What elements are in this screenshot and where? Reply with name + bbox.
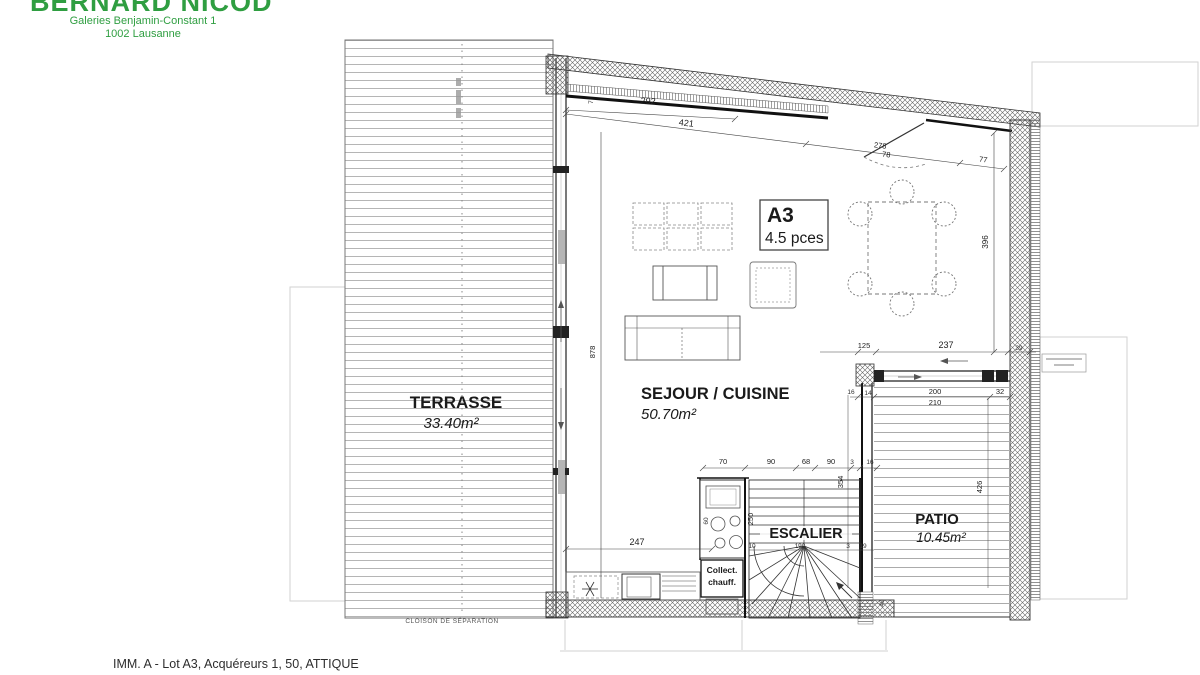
slide-arrow-down-icon xyxy=(558,388,564,430)
slide-arrow-right-icon xyxy=(898,374,922,380)
dim-421: 421 xyxy=(678,117,694,129)
dim-210: 210 xyxy=(929,398,942,407)
dim-68: 68 xyxy=(802,457,810,466)
collect-chauff-box: Collect. chauff. xyxy=(701,560,743,597)
unit-size: 4.5 pces xyxy=(765,230,824,247)
dim-16b: 16 xyxy=(866,459,874,466)
dim-396: 396 xyxy=(981,235,990,249)
address-line1: Galeries Benjamin-Constant 1 xyxy=(18,15,268,28)
dim-125: 125 xyxy=(858,341,871,350)
tv-sideboard xyxy=(633,203,732,250)
floor-drain-icon xyxy=(582,582,598,596)
unit-label-box: A3 4.5 pces xyxy=(760,200,828,250)
terrace-label: TERRASSE xyxy=(410,393,503,412)
stair-direction-arrow xyxy=(836,582,852,598)
sejour-label: SEJOUR / CUISINE xyxy=(641,385,790,403)
patio-window-band xyxy=(874,370,1010,382)
patio-area: 10.45m² xyxy=(916,530,966,545)
stair-label: ESCALIER xyxy=(769,526,843,542)
dim-77: 77 xyxy=(979,155,988,165)
collect-label-2: chauff. xyxy=(708,577,736,587)
roof-band-top xyxy=(548,54,1040,168)
dim-14: 14 xyxy=(864,390,872,397)
dim-60: 60 xyxy=(703,517,710,525)
dim-19: 19 xyxy=(859,543,867,550)
kitchen: Collect. chauff. xyxy=(566,478,749,614)
side-note-box xyxy=(1042,354,1086,372)
dim-90b: 90 xyxy=(827,457,835,466)
dim-250: 250 xyxy=(746,513,755,526)
dim-426: 426 xyxy=(975,481,984,494)
dim-200: 200 xyxy=(929,387,942,396)
address-line2: 1002 Lausanne xyxy=(18,28,268,41)
sejour-area: 50.70m² xyxy=(641,406,697,423)
dim-7: 7 xyxy=(588,100,595,104)
armchair xyxy=(750,262,796,308)
plan-caption: IMM. A - Lot A3, Acquéreurs 1, 50, ATTIQ… xyxy=(113,657,359,671)
patio-label: PATIO xyxy=(915,511,959,528)
unit-code: A3 xyxy=(767,204,794,227)
terrace-area: 33.40m² xyxy=(423,415,479,432)
slide-arrow-left-icon xyxy=(940,358,968,364)
cloison-label: CLOISON DE SÉPARATION xyxy=(405,616,498,625)
floorplan-page: BERNARD NICOD Galeries Benjamin-Constant… xyxy=(0,0,1200,675)
dim-878: 878 xyxy=(588,346,597,359)
dim-247: 247 xyxy=(629,537,644,547)
sofa xyxy=(625,316,740,360)
dining-set xyxy=(848,180,956,316)
dim-10: 10 xyxy=(748,543,756,550)
dim-292: 292 xyxy=(640,96,656,107)
dim-3a: 3 xyxy=(850,459,854,466)
dim-70: 70 xyxy=(719,457,727,466)
dim-78: 78 xyxy=(882,150,891,160)
wall-right xyxy=(1010,120,1040,620)
dim-237: 237 xyxy=(938,340,953,350)
dim-16a: 16 xyxy=(847,389,855,396)
dim-49: 49 xyxy=(879,599,886,607)
collect-label-1: Collect. xyxy=(707,565,738,575)
dim-39: 39 xyxy=(1015,345,1023,352)
dim-354: 354 xyxy=(836,476,845,489)
dim-190: 190 xyxy=(795,543,806,550)
dim-3b: 3 xyxy=(846,543,850,550)
brand-address: Galeries Benjamin-Constant 1 1002 Lausan… xyxy=(18,15,268,41)
dim-90a: 90 xyxy=(767,457,775,466)
dim-32: 32 xyxy=(996,387,1004,396)
floorplan-drawing: TERRASSE 33.40m² CLOISON DE SÉPARATION xyxy=(0,0,1200,675)
terrace: TERRASSE 33.40m² CLOISON DE SÉPARATION xyxy=(345,40,553,625)
coffee-table xyxy=(653,266,717,300)
